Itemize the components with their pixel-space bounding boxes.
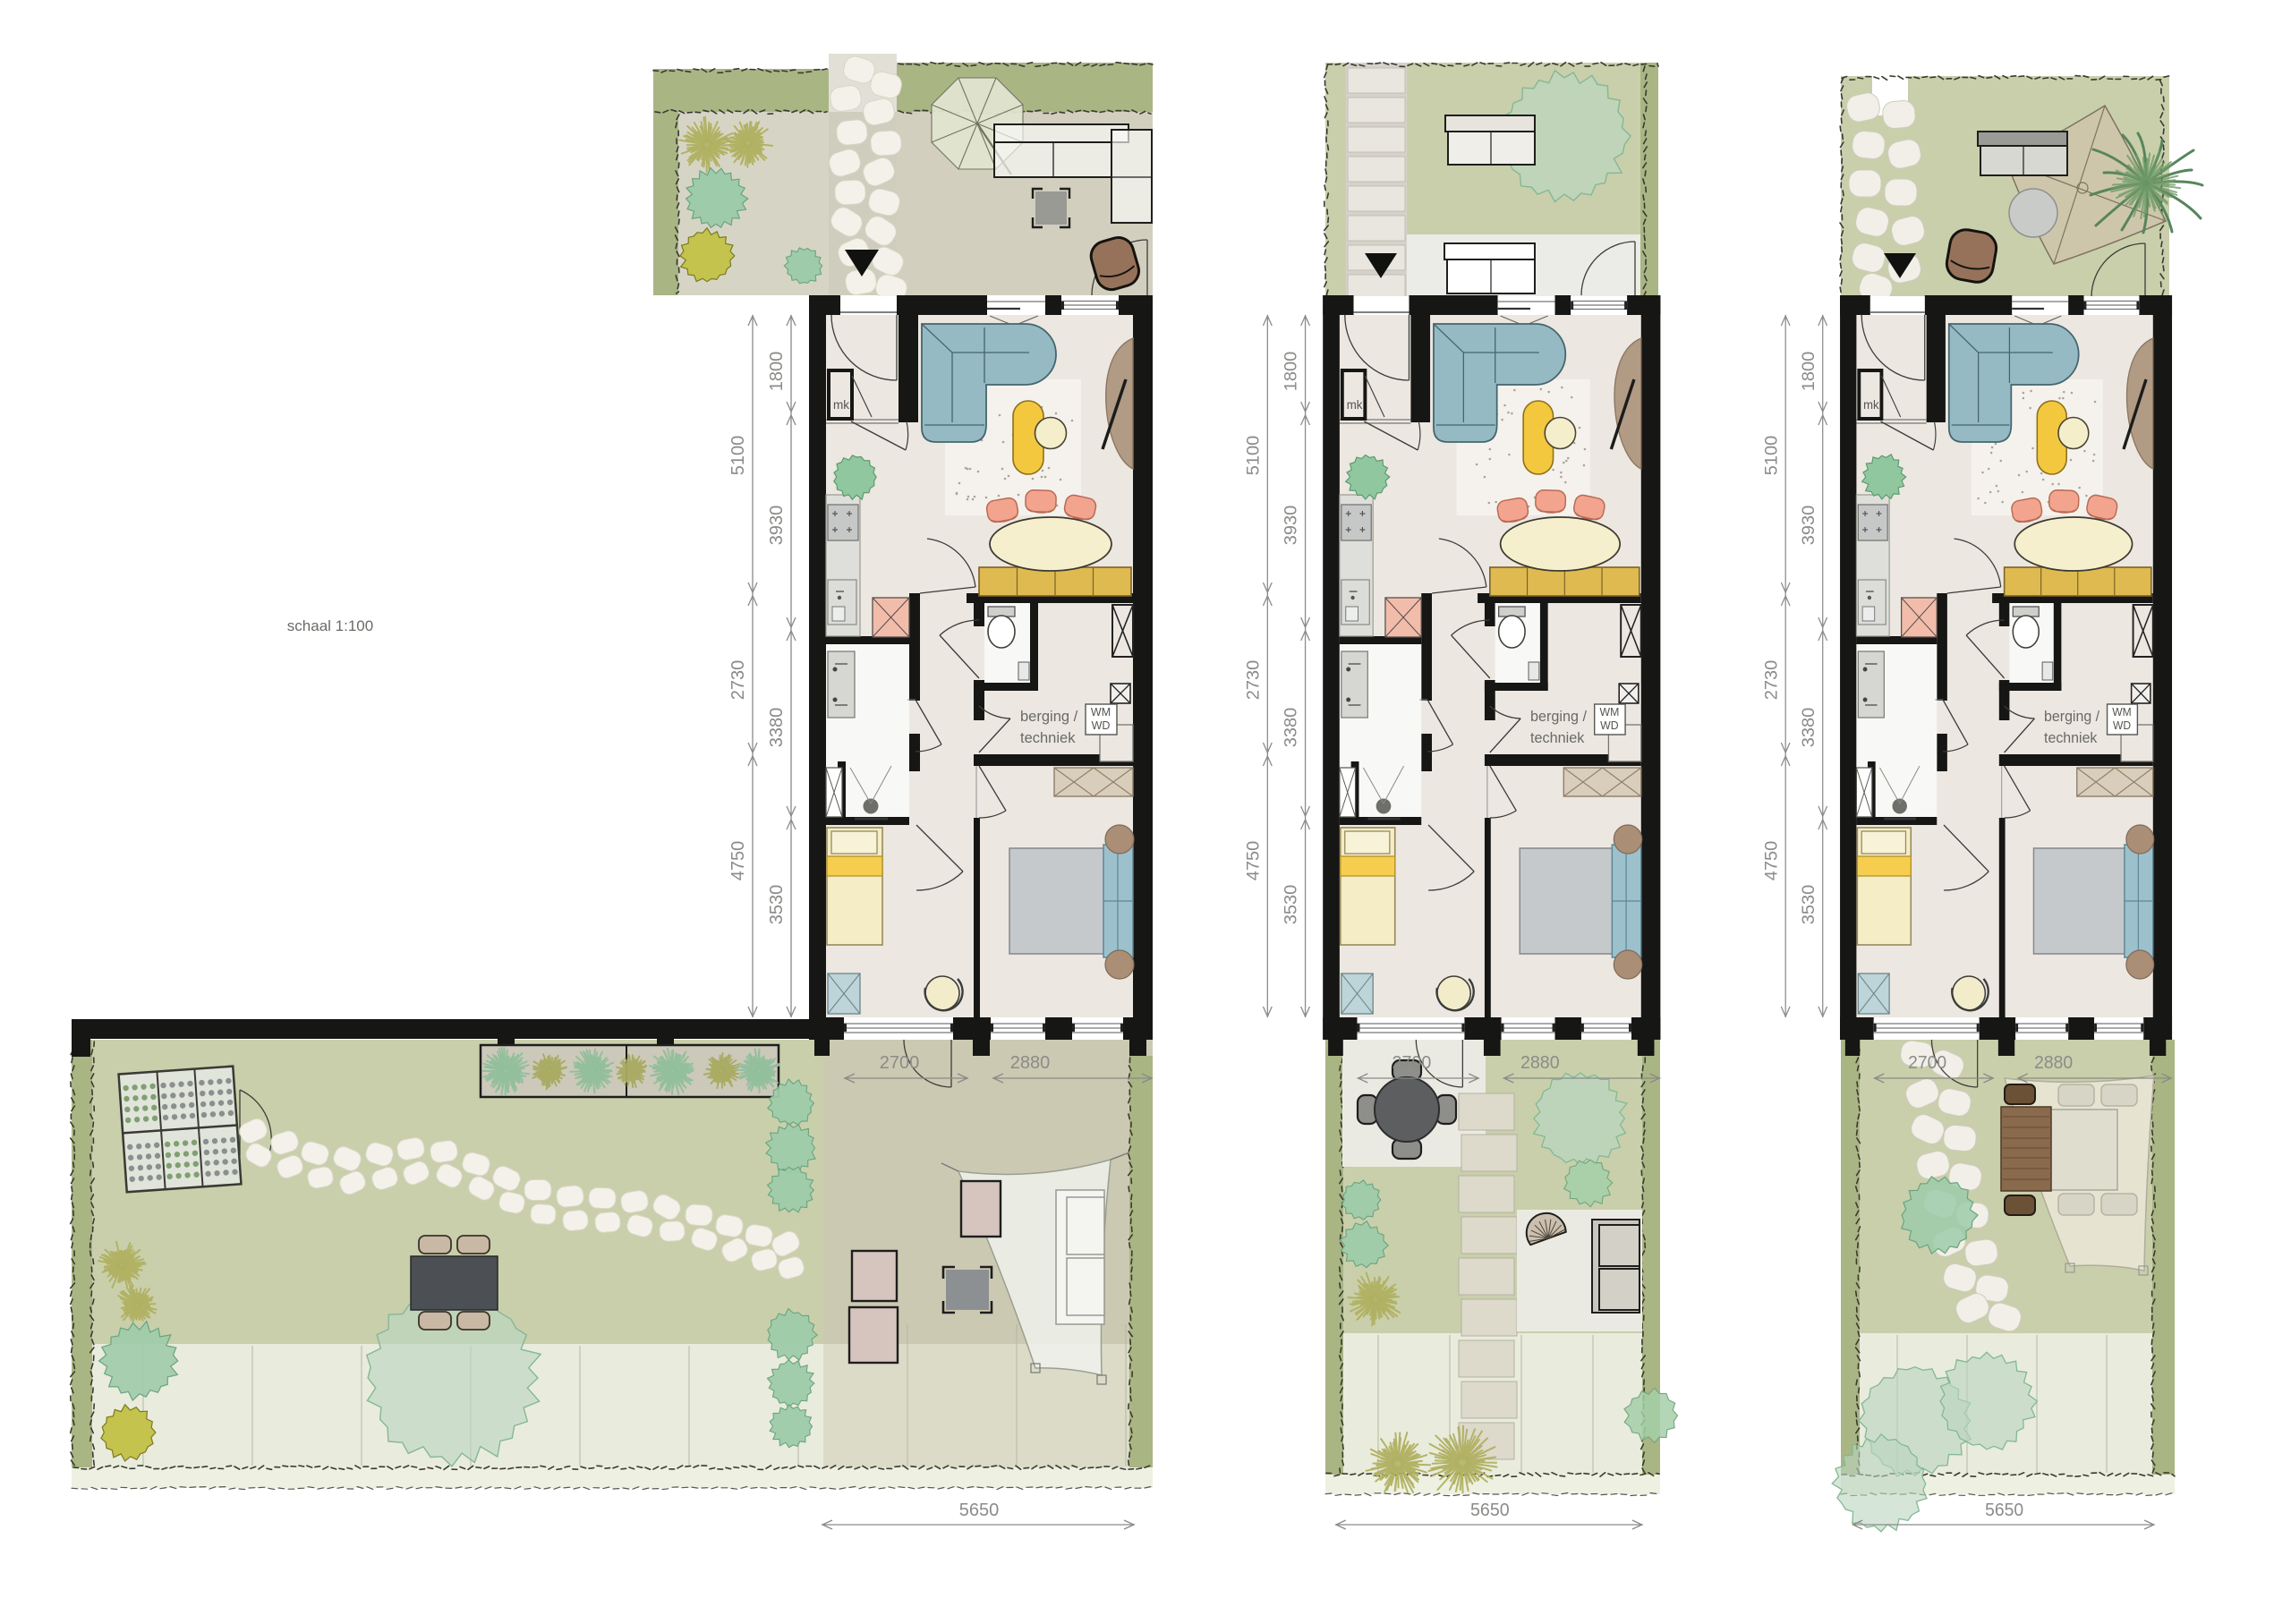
svg-text:2880: 2880 bbox=[1520, 1053, 1560, 1073]
svg-text:techniek: techniek bbox=[1530, 730, 1585, 746]
svg-text:3380: 3380 bbox=[767, 708, 787, 748]
svg-text:2730: 2730 bbox=[1244, 660, 1264, 700]
svg-text:4750: 4750 bbox=[1762, 841, 1782, 881]
svg-text:3530: 3530 bbox=[1282, 885, 1301, 924]
svg-text:3530: 3530 bbox=[767, 885, 787, 925]
svg-text:berging /: berging / bbox=[2044, 709, 2100, 725]
svg-text:WD: WD bbox=[2113, 719, 2131, 732]
svg-text:4750: 4750 bbox=[1244, 841, 1264, 880]
svg-text:2880: 2880 bbox=[2034, 1053, 2073, 1073]
svg-text:2730: 2730 bbox=[728, 660, 748, 701]
svg-text:4750: 4750 bbox=[728, 841, 748, 881]
svg-text:1800: 1800 bbox=[767, 352, 787, 392]
svg-text:1800: 1800 bbox=[1282, 352, 1301, 391]
svg-text:WM: WM bbox=[2112, 706, 2131, 718]
svg-text:mk: mk bbox=[833, 398, 849, 412]
svg-text:WD: WD bbox=[1092, 719, 1111, 732]
svg-text:3380: 3380 bbox=[1282, 708, 1301, 747]
svg-text:berging /: berging / bbox=[1530, 709, 1587, 725]
svg-text:2880: 2880 bbox=[1010, 1053, 1051, 1073]
svg-text:2700: 2700 bbox=[1908, 1053, 1946, 1073]
svg-text:mk: mk bbox=[1347, 398, 1363, 412]
svg-text:2700: 2700 bbox=[1392, 1053, 1432, 1073]
svg-text:berging /: berging / bbox=[1020, 709, 1078, 725]
svg-text:5650: 5650 bbox=[1985, 1501, 2023, 1520]
svg-text:3930: 3930 bbox=[1282, 506, 1301, 545]
svg-text:5650: 5650 bbox=[959, 1501, 1000, 1520]
svg-text:3930: 3930 bbox=[767, 506, 787, 546]
svg-text:5100: 5100 bbox=[1244, 436, 1264, 475]
svg-text:WM: WM bbox=[1600, 706, 1620, 718]
svg-text:5100: 5100 bbox=[728, 436, 748, 476]
svg-text:WM: WM bbox=[1091, 706, 1111, 718]
svg-text:WD: WD bbox=[1600, 719, 1618, 732]
svg-text:1800: 1800 bbox=[1799, 352, 1818, 392]
svg-text:5650: 5650 bbox=[1470, 1501, 1510, 1520]
svg-text:schaal 1:100: schaal 1:100 bbox=[287, 617, 373, 634]
svg-text:3530: 3530 bbox=[1799, 885, 1818, 925]
svg-text:5100: 5100 bbox=[1762, 436, 1782, 476]
svg-text:3380: 3380 bbox=[1799, 708, 1818, 748]
svg-text:2730: 2730 bbox=[1762, 660, 1782, 701]
svg-text:mk: mk bbox=[1863, 398, 1879, 412]
svg-text:techniek: techniek bbox=[1020, 730, 1076, 746]
svg-text:3930: 3930 bbox=[1799, 506, 1818, 546]
svg-text:techniek: techniek bbox=[2044, 730, 2098, 746]
svg-text:2700: 2700 bbox=[880, 1053, 920, 1073]
